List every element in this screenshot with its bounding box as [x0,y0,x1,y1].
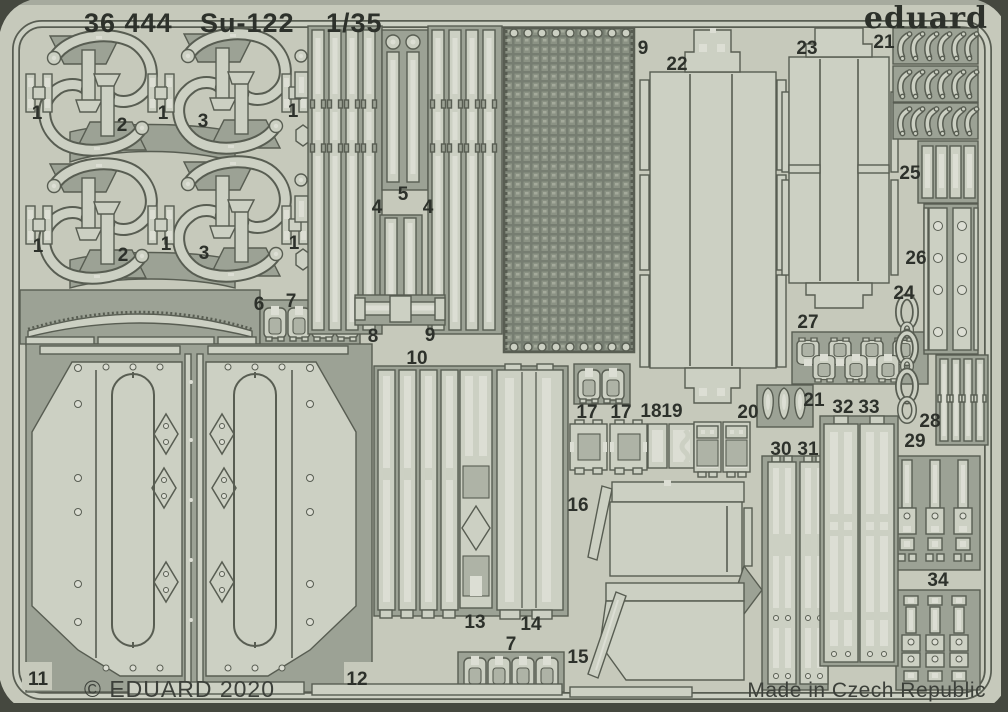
part-10-13-14-group [374,364,568,619]
part-9-mesh-grille [504,28,634,352]
part-label-3: 3 [199,243,210,264]
part-label-29: 29 [904,431,925,452]
part-label-11: 11 [28,669,49,690]
product-name: Su-122 [200,8,295,39]
part-label-1: 1 [161,234,172,255]
part-label-22: 22 [666,54,687,75]
part-26-strips [924,204,978,354]
part-label-33: 33 [858,397,879,418]
photoetch-fret-sheet: 1213112131454678991011121314715161717181… [0,0,1008,712]
copyright-text: © EDUARD 2020 [84,676,275,703]
part-label-12: 12 [346,669,367,690]
brand-logo: eduard [864,1,988,36]
part-label-5: 5 [398,184,409,205]
part-7-clamps-middle [574,364,630,404]
part-label-1: 1 [32,103,43,124]
part-label-9: 9 [638,38,649,59]
part-32-33-ladders [820,416,898,666]
part-28-strips [936,355,988,445]
part-label-18: 18 [640,401,661,422]
catalog-number: 36 444 [84,8,173,39]
part-label-25: 25 [899,163,921,184]
part-label-3: 3 [198,111,209,132]
part-label-13: 13 [464,612,485,633]
part-label-17: 17 [610,402,631,423]
part-14-panel [497,364,563,619]
part-label-31: 31 [797,439,819,460]
part-label-26: 26 [905,248,926,269]
part-label-9: 9 [425,325,436,346]
part-label-1: 1 [288,101,299,122]
part-label-24: 24 [893,283,915,304]
part-label-1: 1 [289,233,300,254]
part-label-32: 32 [832,397,853,418]
part-label-19: 19 [661,401,682,422]
part-25-rack [918,141,978,203]
part-label-20: 20 [737,402,758,423]
part-label-15: 15 [567,647,589,668]
part-13-column [460,370,492,608]
part-29-buckle-strips [894,456,980,570]
part-18-bracket [648,424,667,468]
part-label-1: 1 [33,236,44,257]
origin-text: Made in Czech Republic [747,679,986,703]
part-label-23: 23 [796,38,817,59]
part-label-17: 17 [576,402,597,423]
part-label-2: 2 [117,115,128,136]
part-23-panel [782,28,898,308]
part-label-14: 14 [520,614,542,635]
part-label-21: 21 [803,390,825,411]
part-label-27: 27 [797,312,818,333]
part-label-16: 16 [567,495,588,516]
part-21-hook-rows [893,28,979,139]
part-label-1: 1 [158,103,169,124]
part-label-6: 6 [254,294,265,315]
part-34-buckle-strips [896,590,980,690]
part-label-10: 10 [406,348,427,369]
part-6-serrated-arc [20,290,260,345]
part-4-strips-right [428,26,502,334]
part-label-28: 28 [919,411,940,432]
part-30-31-ladders [762,456,828,690]
part-label-30: 30 [770,439,791,460]
part-19-bracket [669,424,694,468]
part-label-8: 8 [368,326,379,347]
part-label-34: 34 [927,570,949,591]
part-label-4: 4 [423,197,434,218]
part-label-7: 7 [506,634,517,655]
part-4-strips-left [308,26,382,334]
part-label-4: 4 [372,197,383,218]
part-11-12-fenders [22,344,374,692]
part-22-panel [640,28,786,403]
fret-artwork: 1213112131454678991011121314715161717181… [0,0,1008,712]
part-label-2: 2 [118,245,129,266]
scale-label: 1/35 [326,8,383,39]
part-5-strips [382,30,428,190]
part-label-7: 7 [286,291,297,312]
